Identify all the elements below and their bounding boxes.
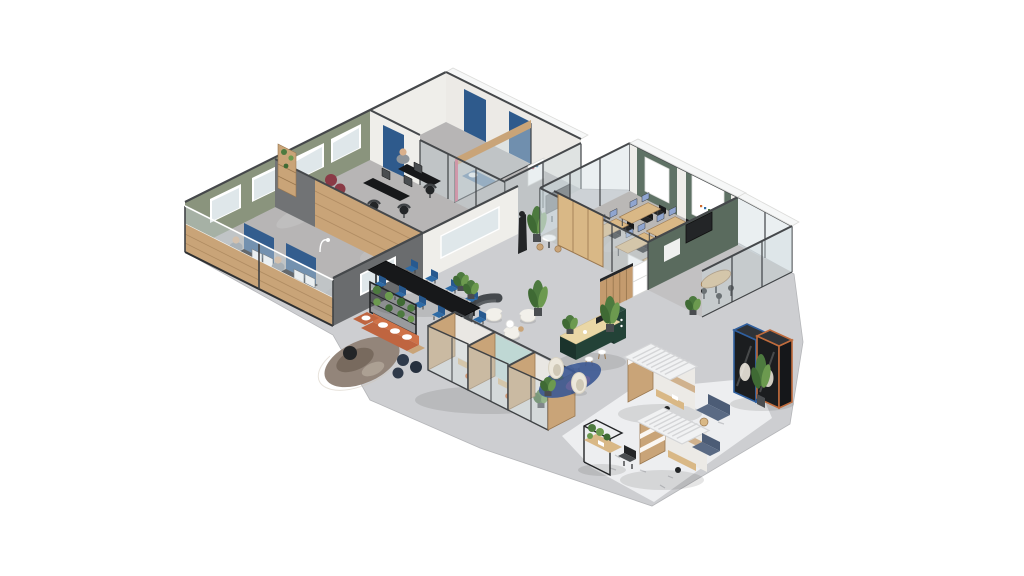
wood-stool [537, 244, 543, 250]
cocoon-chair [571, 373, 587, 397]
cocoon-chair [548, 358, 564, 382]
pergola2-shadow [620, 470, 704, 490]
navy-pouf [410, 361, 422, 373]
wood-side-table [518, 326, 524, 332]
wood-shelf-with-plants [278, 144, 296, 197]
fridge-cabinet [633, 260, 647, 297]
white-armchair [486, 310, 502, 323]
navy-pouf [397, 354, 409, 366]
wood-stool [555, 246, 561, 252]
white-armchair [520, 311, 536, 324]
navy-pouf [393, 368, 404, 379]
isometric-office-scene: Isometric 3D office floor plan rendering… [0, 0, 1024, 576]
office-floorplan-render: Isometric 3D office floor plan rendering… [0, 0, 1024, 576]
black-pouf [343, 346, 357, 360]
side-table [506, 320, 514, 328]
white-armchair [504, 328, 520, 341]
